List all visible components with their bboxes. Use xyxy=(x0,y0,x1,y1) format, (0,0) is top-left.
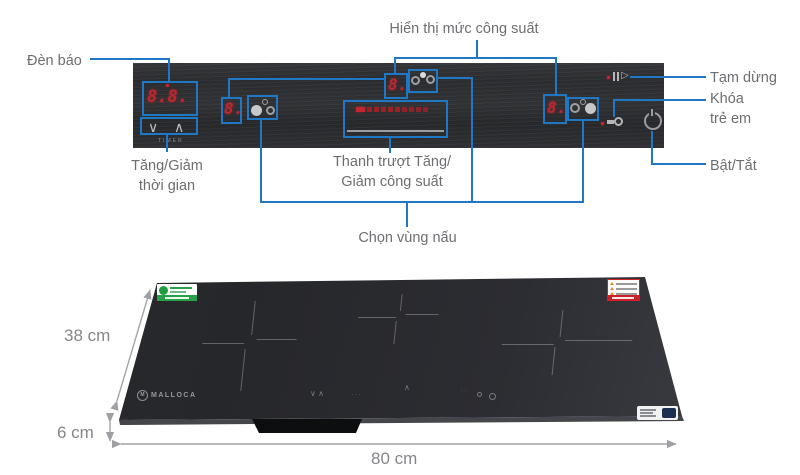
power-button-icon xyxy=(644,112,662,130)
product-diagram: 8.8. ∨ ∧ TIMER 8. 8. 8. ▷ xyxy=(0,0,800,475)
zone2-power-display: 8. xyxy=(388,77,407,93)
timer-caption: TIMER xyxy=(158,138,184,144)
label-on-off: Bật/Tắt xyxy=(710,156,757,176)
glass-touch-power-dots: ∙ ∙ xyxy=(461,388,466,394)
brand-name: MALLOCA xyxy=(151,392,197,399)
line-power-z3 xyxy=(555,57,557,96)
child-lock-key-icon xyxy=(607,120,614,124)
pause-play-icon: ▷ xyxy=(621,71,629,81)
zone1-selector-dot xyxy=(262,99,268,105)
glass-touch-ring xyxy=(477,392,482,397)
line-power-z1-v xyxy=(228,78,230,99)
zone3-power-display: 8. xyxy=(547,100,566,116)
power-slider-track xyxy=(347,130,444,132)
line-child-lock-v xyxy=(613,99,615,117)
line-power-z2 xyxy=(394,57,396,75)
glass-touch-power-icon xyxy=(489,393,496,400)
glass-touch-dots: ∙ ∙ ∙ xyxy=(352,392,360,398)
line-power-btn-h xyxy=(651,163,706,165)
energy-saving-label xyxy=(157,284,197,301)
zone2-selector-ring2 xyxy=(426,75,435,84)
line-timer-label xyxy=(166,134,168,152)
brand-logo: M MALLOCA xyxy=(137,390,197,401)
line-power-z1-h xyxy=(228,78,386,80)
glass-touch-chevrons: ∨ ∧ xyxy=(310,390,324,398)
line-slider-label xyxy=(389,137,391,153)
line-child-lock-h xyxy=(613,99,706,101)
height-dimension-label: 6 cm xyxy=(57,423,94,443)
zone1-selector-ring xyxy=(266,106,275,115)
power-slider-segments xyxy=(356,107,428,112)
child-lock-ring-icon xyxy=(614,117,623,126)
zone1-power-display: 8. xyxy=(224,101,243,117)
line-power-h xyxy=(394,57,557,59)
burner-center-cross xyxy=(355,294,440,344)
label-power-level-display: Hiển thị mức công suất xyxy=(354,19,574,39)
pause-indicator-dot xyxy=(607,76,610,79)
line-den-bao-v xyxy=(168,58,170,83)
burner-left-cross xyxy=(197,301,300,391)
line-zone-sel-3 xyxy=(582,120,584,203)
zone3-selector-ring xyxy=(570,103,580,113)
glass-touch-slider-mark: ∧ xyxy=(404,384,410,392)
origin-label-emblem xyxy=(662,408,676,418)
pause-icon xyxy=(613,72,615,81)
pause-icon-bar2 xyxy=(617,72,619,81)
timer-down-icon: ∨ xyxy=(148,120,158,134)
label-zone-select: Chọn vùng nấu xyxy=(340,228,475,248)
line-zone-sel-2h xyxy=(437,77,473,79)
warning-triangle-icon xyxy=(610,282,614,285)
line-zone-sel-h xyxy=(260,201,584,203)
line-power-btn-v xyxy=(651,131,653,165)
zone3-selector-dot xyxy=(580,99,586,105)
child-lock-indicator-dot xyxy=(601,122,604,125)
timer-up-icon: ∧ xyxy=(174,120,184,134)
depth-dimension-label: 38 cm xyxy=(64,326,110,346)
line-zone-sel-1 xyxy=(260,119,262,203)
label-child-lock: Khóa trẻ em xyxy=(710,89,751,129)
energy-label-logo xyxy=(159,286,168,295)
warning-label xyxy=(607,279,640,301)
power-button-icon-bar xyxy=(651,109,653,116)
warning-triangle-icon xyxy=(610,287,614,290)
line-pause xyxy=(630,76,706,78)
label-power-slider: Thanh trượt Tăng/ Giảm công suất xyxy=(302,152,482,192)
timer-display: 8.8. xyxy=(147,89,188,106)
line-zone-sel-label xyxy=(406,201,408,227)
label-indicator-light: Đèn báo xyxy=(27,51,82,71)
label-timer-adjust: Tăng/Giảm thời gian xyxy=(107,156,227,196)
timer-indicator-dot xyxy=(166,84,169,87)
width-dimension-label: 80 cm xyxy=(371,449,417,469)
zone3-selector-icon xyxy=(585,103,596,114)
brand-m-icon: M xyxy=(137,390,148,401)
label-pause: Tạm dừng xyxy=(710,68,777,88)
power-slider-box xyxy=(343,100,448,138)
zone2-selector-dot xyxy=(420,72,426,78)
origin-label xyxy=(637,406,678,420)
line-den-bao xyxy=(90,58,170,60)
zone2-selector-ring xyxy=(411,76,420,85)
zone1-selector-icon xyxy=(251,105,262,116)
burner-right-cross xyxy=(499,310,636,375)
